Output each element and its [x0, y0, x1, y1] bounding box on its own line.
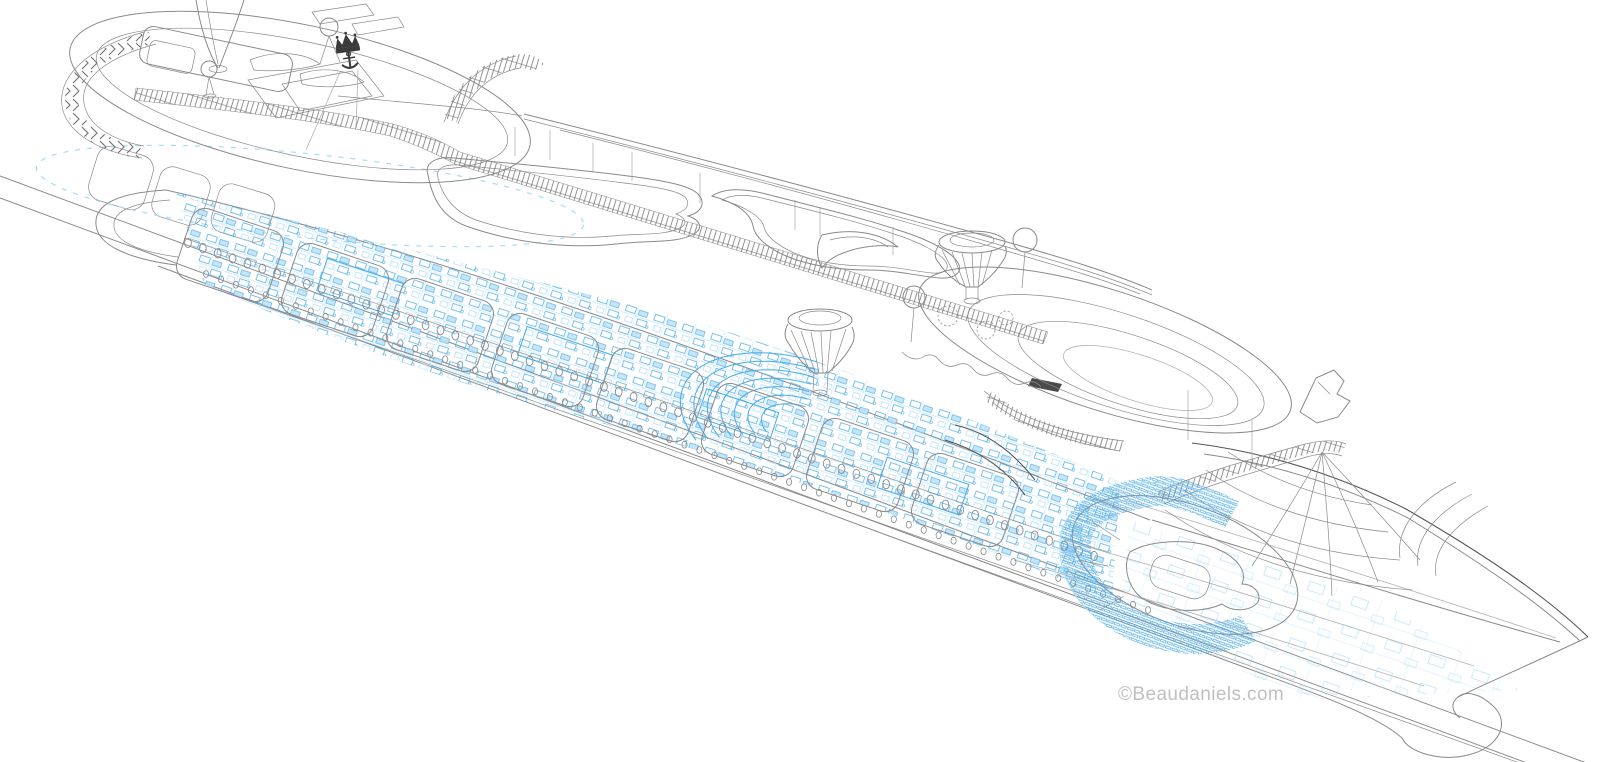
- porthole: [185, 238, 192, 247]
- pool-b-outer: [712, 190, 959, 278]
- sail-mast: [196, 0, 244, 73]
- porthole: [891, 516, 896, 523]
- bulbous-bow: [1402, 694, 1502, 758]
- porthole: [802, 484, 807, 491]
- porthole: [966, 543, 971, 550]
- porthole: [787, 479, 792, 486]
- stair-wedge: [1028, 378, 1062, 392]
- porthole: [951, 537, 956, 544]
- funnel-radar-ball: [320, 18, 338, 36]
- pool-a-outer: [427, 158, 702, 246]
- louver-strip-b: [352, 17, 404, 35]
- louver-strip-a: [312, 4, 374, 24]
- watermark-text: ©Beaudaniels.com: [1118, 684, 1284, 705]
- bow-crest-fin: [1300, 370, 1350, 423]
- porthole: [921, 527, 926, 534]
- lounge-wing-b: [300, 70, 364, 87]
- ship-cutaway-illustration: ©Beaudaniels.com: [0, 0, 1600, 762]
- porthole: [906, 521, 911, 528]
- porthole: [936, 532, 941, 539]
- stern-cap-inner: [114, 200, 178, 257]
- radar-sphere: [201, 61, 217, 98]
- foredeck-nested-arcs: [1399, 482, 1488, 576]
- wireframe-canvas: ©Beaudaniels.com: [0, 0, 1600, 762]
- lounge-wing-a: [250, 54, 320, 71]
- superstructure: [55, 0, 1488, 662]
- stern-cap-outer: [96, 190, 176, 265]
- porthole: [876, 511, 881, 518]
- pool-a-inner: [437, 165, 687, 238]
- porthole: [981, 548, 986, 555]
